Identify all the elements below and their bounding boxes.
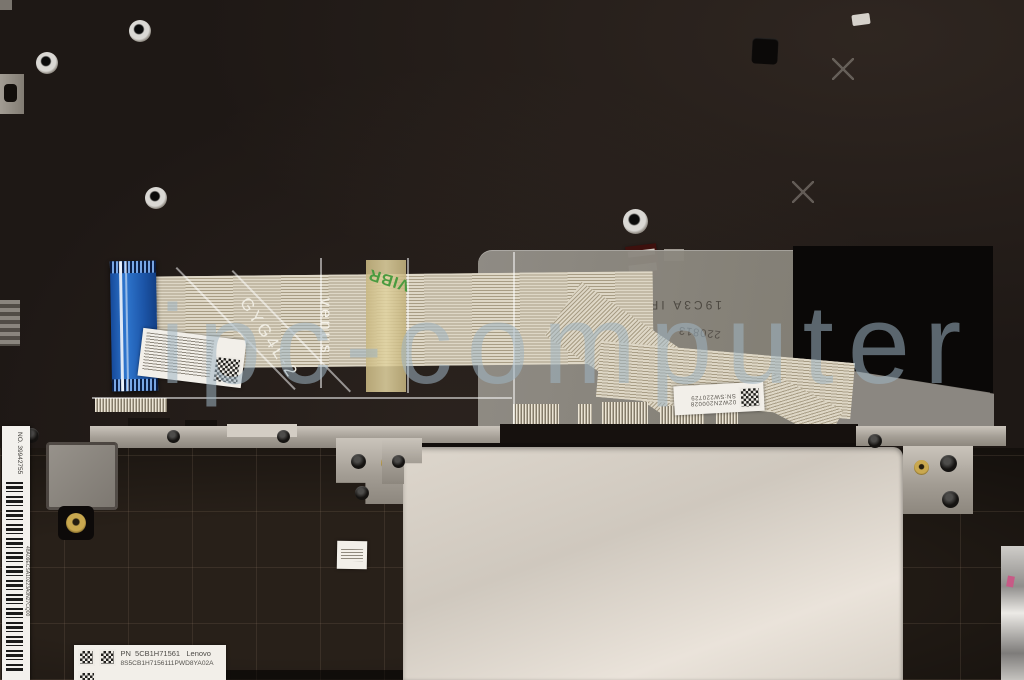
- touchpad: [403, 447, 903, 680]
- screw-icon: [351, 454, 366, 469]
- part-label-prefix: PN: [120, 649, 130, 658]
- square-cutout: [751, 37, 778, 64]
- screw-boss-icon: [36, 52, 58, 74]
- barcode-icon: [6, 482, 23, 672]
- label-microtext: [341, 549, 363, 561]
- qr-code-icon: [78, 671, 96, 680]
- small-kb-label: [337, 541, 367, 570]
- screw-icon: [940, 455, 957, 472]
- reflective-strip: [1001, 546, 1024, 680]
- screw-icon: [277, 430, 290, 443]
- gold-screw-hole-icon: [914, 460, 929, 475]
- connector-teeth: [112, 379, 158, 392]
- part-number-label: PN 5CB1H71561 Lenovo 8S5CB1H7156111PWD8Y…: [74, 645, 226, 680]
- screw-icon: [868, 434, 882, 448]
- qr-code-icon: [78, 649, 95, 666]
- scratch-x-mark: [792, 181, 814, 203]
- screw-boss-icon: [623, 209, 648, 234]
- edge-metal-tab: [0, 0, 12, 10]
- qr-code-icon: [99, 649, 116, 666]
- screw-icon: [392, 455, 405, 468]
- screw-boss-icon: [145, 187, 167, 209]
- metal-plate-right: [903, 446, 973, 514]
- watermark-text: ipc-computer: [160, 280, 975, 409]
- connector-teeth: [110, 261, 156, 274]
- side-label-number: NO. 39942755: [16, 432, 23, 474]
- screw-boss-icon: [129, 20, 151, 42]
- gold-screw-hole-icon: [66, 513, 86, 533]
- cable-finger-comb: [95, 398, 167, 412]
- laptop-palmrest-photo: 19C3A IR 220813 SU IC VIBR GYG4L-2 venus…: [0, 0, 1024, 680]
- screw-icon: [942, 491, 959, 508]
- gray-square-pad: [46, 442, 118, 510]
- part-label-brand: Lenovo: [186, 649, 211, 658]
- part-label-code: 8S5CB1H7156111PWD8YA02A: [120, 659, 213, 669]
- edge-bracket-hole: [4, 84, 17, 102]
- connector-stripe: [125, 261, 129, 391]
- scratch-x-mark: [832, 58, 854, 80]
- side-label-code: 48A09ECSA10223A0N27CQ00: [24, 546, 30, 616]
- screw-icon: [167, 430, 180, 443]
- side-barcode-label: NO. 39942755 48A09ECSA10223A0N27CQ00: [2, 426, 30, 680]
- edge-ribbed-block: [0, 300, 20, 346]
- connector-stripe: [119, 261, 124, 391]
- part-label-number: 5CB1H71561: [135, 649, 180, 658]
- screw-icon: [355, 486, 369, 500]
